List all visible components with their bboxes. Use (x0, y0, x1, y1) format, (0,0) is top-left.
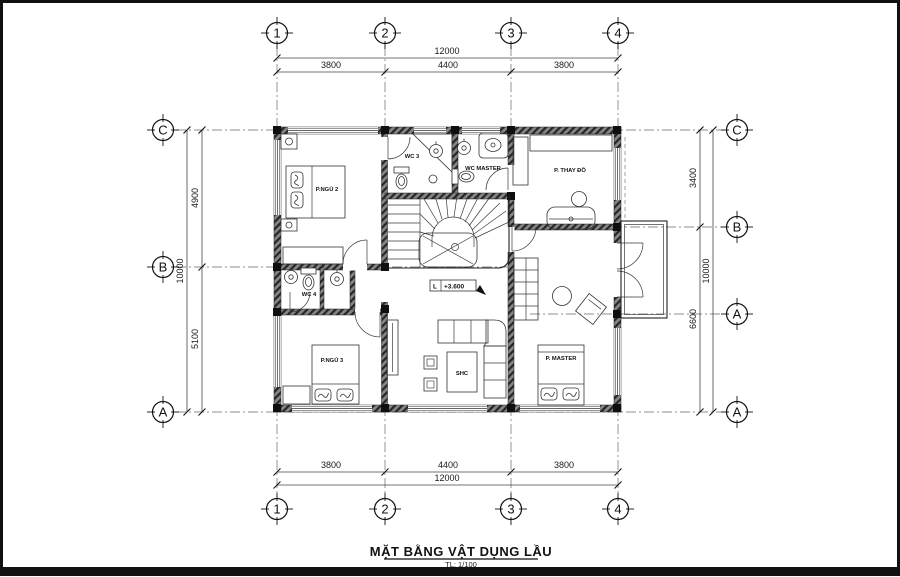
master-furniture (514, 258, 606, 405)
room-label-bedroom2: P.NGỦ 2 (316, 186, 338, 193)
dim-top-total: 12000 (434, 46, 459, 56)
door-bedroom2 (343, 240, 367, 264)
bubble-col1-bottom: 1 (273, 502, 280, 517)
room-label-wc4: WC 4 (302, 292, 317, 298)
bubble-col1-top: 1 (273, 26, 280, 41)
dim-top-seg-2: 3800 (554, 60, 574, 70)
window-left-bedroom3 (274, 315, 281, 387)
dim-top-seg-1: 4400 (438, 60, 458, 70)
door-bedroom3 (355, 312, 380, 337)
window-bottom-living (408, 405, 487, 412)
dim-right-seg-1: 6600 (688, 309, 698, 329)
drawing-title: MẶT BẰNG VẬT DỤNG LẦU (370, 544, 552, 559)
bubble-rowA-right: A (733, 405, 742, 420)
title-block: MẶT BẰNG VẬT DỤNG LẦU TL: 1/100 (370, 544, 552, 569)
bed-bedroom2 (281, 134, 345, 231)
bed-bedroom3 (312, 345, 359, 404)
dim-bottom-seg-2: 3800 (554, 460, 574, 470)
room-label-shc: SHC (456, 371, 469, 377)
floor-plan-svg: 12000 3800 4400 3800 3800 4400 3800 1200… (0, 0, 900, 577)
window-right-dressing (614, 148, 621, 200)
wardrobe-bedroom2 (283, 247, 343, 264)
level-prefix: L (433, 284, 437, 291)
dim-bottom-total: 12000 (434, 473, 459, 483)
bubble-rowA-mid-right: A (733, 307, 742, 322)
window-bottom-master (520, 405, 600, 412)
level-marker: L +3.600 (430, 280, 486, 295)
bubble-rowB-right: B (733, 220, 742, 235)
bubble-col3-top: 3 (507, 26, 514, 41)
staircase (388, 196, 509, 268)
dim-right-total: 10000 (701, 258, 711, 283)
room-label-dressing: P. THAY ĐỒ (554, 167, 586, 174)
dim-bottom-seg-1: 4400 (438, 460, 458, 470)
level-value: +3.600 (444, 284, 464, 291)
bubble-rowA-left: A (159, 405, 168, 420)
dressing-furniture (513, 135, 612, 229)
window-top-wc3 (414, 127, 446, 134)
window-right-master (614, 328, 621, 395)
dim-left-seg-1: 5100 (190, 329, 200, 349)
bubble-col4-top: 4 (614, 26, 621, 41)
floor-plan-drawing: 12000 3800 4400 3800 3800 4400 3800 1200… (0, 0, 900, 577)
bubble-col4-bottom: 4 (614, 502, 621, 517)
dim-top-seg-0: 3800 (321, 60, 341, 70)
bubble-rowC-left: C (158, 123, 167, 138)
dim-bottom-seg-0: 3800 (321, 460, 341, 470)
dim-left-seg-0: 4900 (190, 188, 200, 208)
window-top-bedroom2 (288, 127, 378, 134)
grid-bubbles: 1 2 3 4 1 2 3 4 C B A C B A A (147, 17, 753, 525)
dim-right-seg-0: 3400 (688, 168, 698, 188)
wcmaster-fixtures (452, 133, 508, 184)
bubble-col2-top: 2 (381, 26, 388, 41)
room-label-bedroom3: P.NGỦ 3 (321, 357, 344, 364)
living-furniture (387, 320, 506, 398)
dim-left-total: 10000 (175, 258, 185, 283)
wc3-fixtures (394, 134, 452, 189)
window-bottom-bedroom3 (292, 405, 372, 412)
door-master (512, 227, 536, 251)
bubble-col3-bottom: 3 (507, 502, 514, 517)
room-label-wcmaster: WC MASTER (465, 166, 502, 172)
room-label-wc3: WC 3 (405, 154, 420, 160)
wardrobe-bedroom3 (283, 386, 310, 404)
room-label-master: P. MASTER (546, 356, 578, 362)
grid-lines (176, 46, 724, 497)
bubble-rowB-left: B (159, 260, 168, 275)
wc4-fixtures (285, 268, 344, 291)
bubble-rowC-right: C (732, 123, 741, 138)
window-left-bedroom2 (274, 140, 281, 215)
bubble-col2-bottom: 2 (381, 502, 388, 517)
balcony (621, 221, 667, 318)
